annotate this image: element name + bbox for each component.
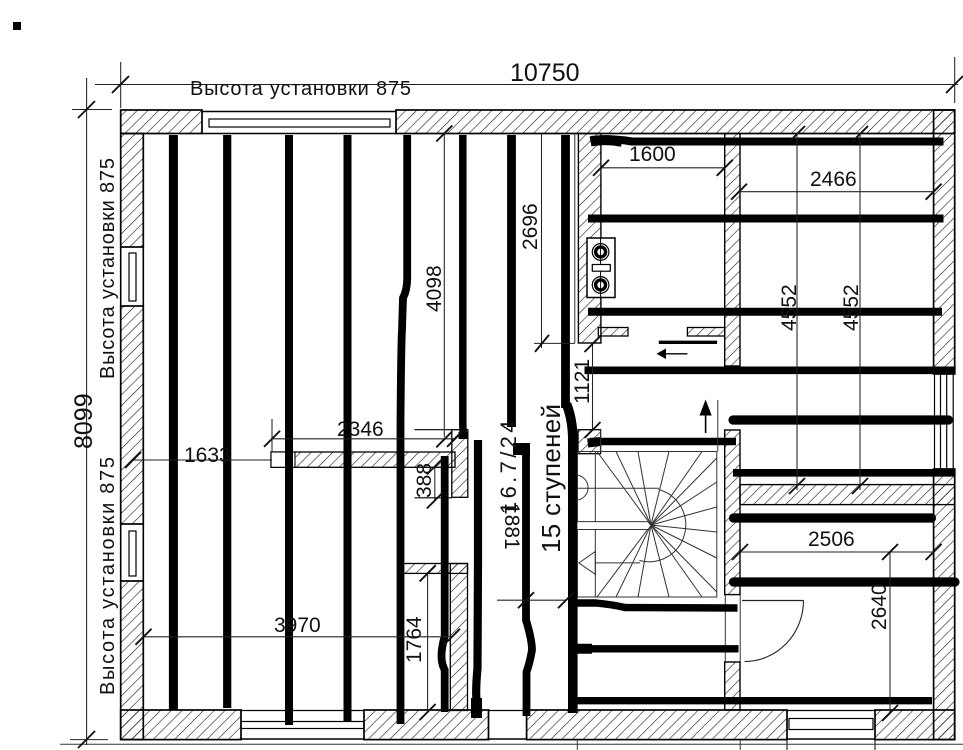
svg-text:4098: 4098 <box>423 265 446 312</box>
svg-text:Высота установки 875: Высота установки 875 <box>97 158 119 379</box>
svg-text:1633: 1633 <box>184 444 231 467</box>
svg-text:1600: 1600 <box>629 143 676 166</box>
svg-text:2346: 2346 <box>337 418 384 441</box>
svg-text:2696: 2696 <box>519 203 542 250</box>
svg-text:10750: 10750 <box>510 59 580 87</box>
svg-text:1764: 1764 <box>403 616 426 663</box>
svg-text:2506: 2506 <box>808 528 855 551</box>
svg-text:1121: 1121 <box>571 359 594 404</box>
svg-text:4552: 4552 <box>840 284 863 331</box>
svg-text:1881: 1881 <box>500 503 523 550</box>
svg-text:2466: 2466 <box>810 168 857 191</box>
svg-text:Высота установки 875: Высота установки 875 <box>190 78 411 100</box>
svg-text:Высота установки 875: Высота установки 875 <box>97 457 119 695</box>
svg-text:4552: 4552 <box>778 284 801 331</box>
svg-text:2640: 2640 <box>868 583 891 630</box>
svg-text:3970: 3970 <box>274 614 321 637</box>
svg-text:388: 388 <box>413 463 436 498</box>
svg-text:16.7/24.: 16.7/24. <box>496 411 521 514</box>
svg-text:8099: 8099 <box>70 393 98 449</box>
svg-text:15 ступеней: 15 ступеней <box>536 404 566 553</box>
